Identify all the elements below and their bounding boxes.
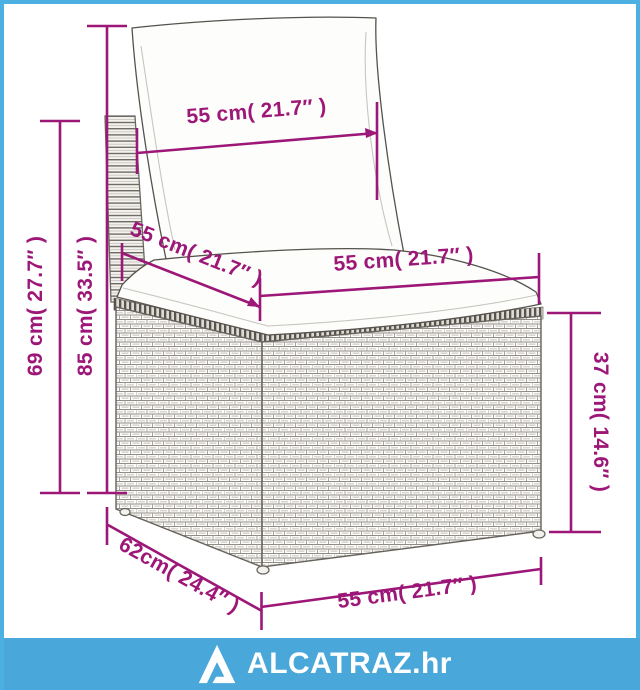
foot-right bbox=[533, 530, 545, 538]
foot-front bbox=[257, 566, 269, 574]
total-height-label: 69 cm( 27.7″ ) bbox=[24, 236, 47, 376]
furniture-dimension-diagram: 85 cm( 33.5″ ) 69 cm( 27.7″ ) 55 cm( 21.… bbox=[4, 4, 640, 642]
brand-bar: ALCATRAZ.hr bbox=[4, 638, 640, 690]
dim-base-width: 55 cm( 21.7″ ) bbox=[261, 557, 541, 630]
base-width-label: 55 cm( 21.7″ ) bbox=[336, 572, 478, 613]
backrest-height-label: 85 cm( 33.5″ ) bbox=[74, 236, 97, 376]
back-cushion bbox=[132, 17, 404, 262]
brand-text: ALCATRAZ.hr bbox=[247, 647, 452, 681]
foot-left bbox=[120, 509, 130, 516]
seat-height-label: 37 cm( 14.6″ ) bbox=[589, 352, 612, 492]
image-frame: 85 cm( 33.5″ ) 69 cm( 27.7″ ) 55 cm( 21.… bbox=[0, 0, 640, 690]
dim-seat-height: 37 cm( 14.6″ ) bbox=[547, 313, 612, 532]
dim-total-height: 69 cm( 27.7″ ) bbox=[24, 121, 80, 493]
base-left-face bbox=[116, 307, 262, 567]
base-front-face bbox=[262, 316, 541, 567]
alcatraz-triangle-logo-icon bbox=[196, 642, 238, 686]
